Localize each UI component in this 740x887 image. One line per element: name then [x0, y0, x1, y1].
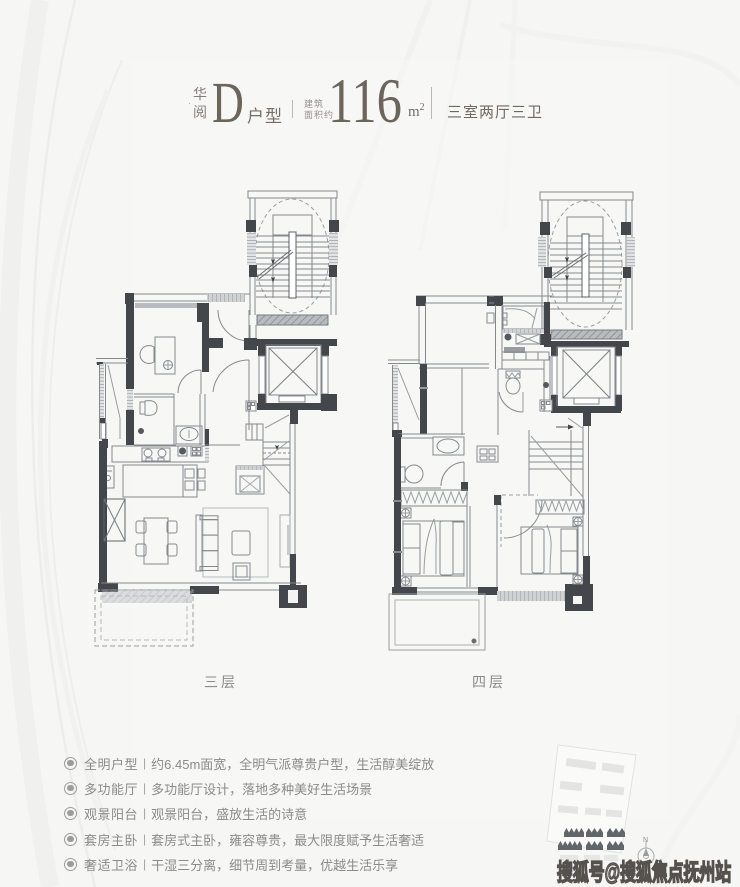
svg-text:N: N — [643, 837, 648, 844]
